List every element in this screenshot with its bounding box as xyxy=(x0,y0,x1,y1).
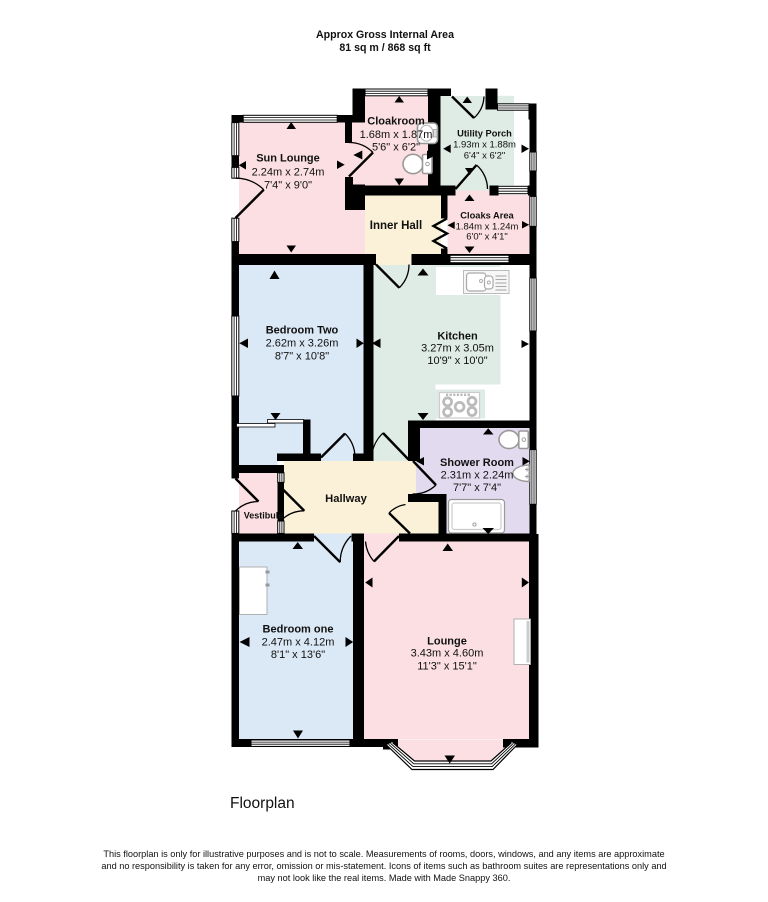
svg-text:Bedroom one: Bedroom one xyxy=(263,624,334,636)
svg-text:2.31m x 2.24m: 2.31m x 2.24m xyxy=(441,470,514,482)
svg-text:Inner Hall: Inner Hall xyxy=(370,220,422,232)
svg-text:8'7" x 10'8": 8'7" x 10'8" xyxy=(275,350,329,362)
svg-text:Approx Gross Internal Area: Approx Gross Internal Area xyxy=(316,29,454,41)
svg-text:Vestibule: Vestibule xyxy=(244,511,284,521)
svg-text:Utility Porch: Utility Porch xyxy=(457,129,512,139)
svg-text:5'6" x 6'2": 5'6" x 6'2" xyxy=(372,142,420,154)
svg-text:Kitchen: Kitchen xyxy=(437,331,478,343)
svg-text:7'4" x 9'0": 7'4" x 9'0" xyxy=(264,180,312,192)
svg-text:Bedroom Two: Bedroom Two xyxy=(266,325,339,337)
svg-text:7'7" x 7'4": 7'7" x 7'4" xyxy=(453,482,501,494)
svg-text:may not look like the real ite: may not look like the real items. Made w… xyxy=(258,873,511,883)
svg-text:6'4" x 6'2": 6'4" x 6'2" xyxy=(464,150,506,161)
svg-text:Sun Lounge: Sun Lounge xyxy=(256,153,320,165)
svg-text:6'0" x 4'1": 6'0" x 4'1" xyxy=(466,232,508,243)
svg-text:11'3" x 15'1": 11'3" x 15'1" xyxy=(417,661,477,673)
svg-text:3.43m x 4.60m: 3.43m x 4.60m xyxy=(411,648,484,660)
svg-text:Cloakroom: Cloakroom xyxy=(367,115,425,127)
svg-text:2.62m x 3.26m: 2.62m x 3.26m xyxy=(266,337,339,349)
svg-text:Cloaks Area: Cloaks Area xyxy=(460,211,514,221)
svg-text:1.93m x 1.88m: 1.93m x 1.88m xyxy=(453,140,516,151)
svg-text:Hallway: Hallway xyxy=(325,493,367,505)
svg-text:2.47m x 4.12m: 2.47m x 4.12m xyxy=(262,637,335,649)
svg-text:1.68m x 1.87m: 1.68m x 1.87m xyxy=(360,129,433,141)
svg-text:and no responsibility is taken: and no responsibility is taken for any e… xyxy=(101,861,666,871)
svg-text:This floorplan is only for ill: This floorplan is only for illustrative … xyxy=(103,849,664,859)
svg-text:8'1" x 13'6": 8'1" x 13'6" xyxy=(271,649,325,661)
svg-text:3.27m x 3.05m: 3.27m x 3.05m xyxy=(421,342,494,354)
svg-text:Floorplan: Floorplan xyxy=(230,795,295,812)
svg-text:Shower Room: Shower Room xyxy=(440,457,514,469)
svg-text:81 sq m / 868 sq ft: 81 sq m / 868 sq ft xyxy=(339,42,431,54)
svg-text:Lounge: Lounge xyxy=(427,636,467,648)
svg-text:10'9" x 10'0": 10'9" x 10'0" xyxy=(427,355,487,367)
svg-text:2.24m x 2.74m: 2.24m x 2.74m xyxy=(252,167,325,179)
